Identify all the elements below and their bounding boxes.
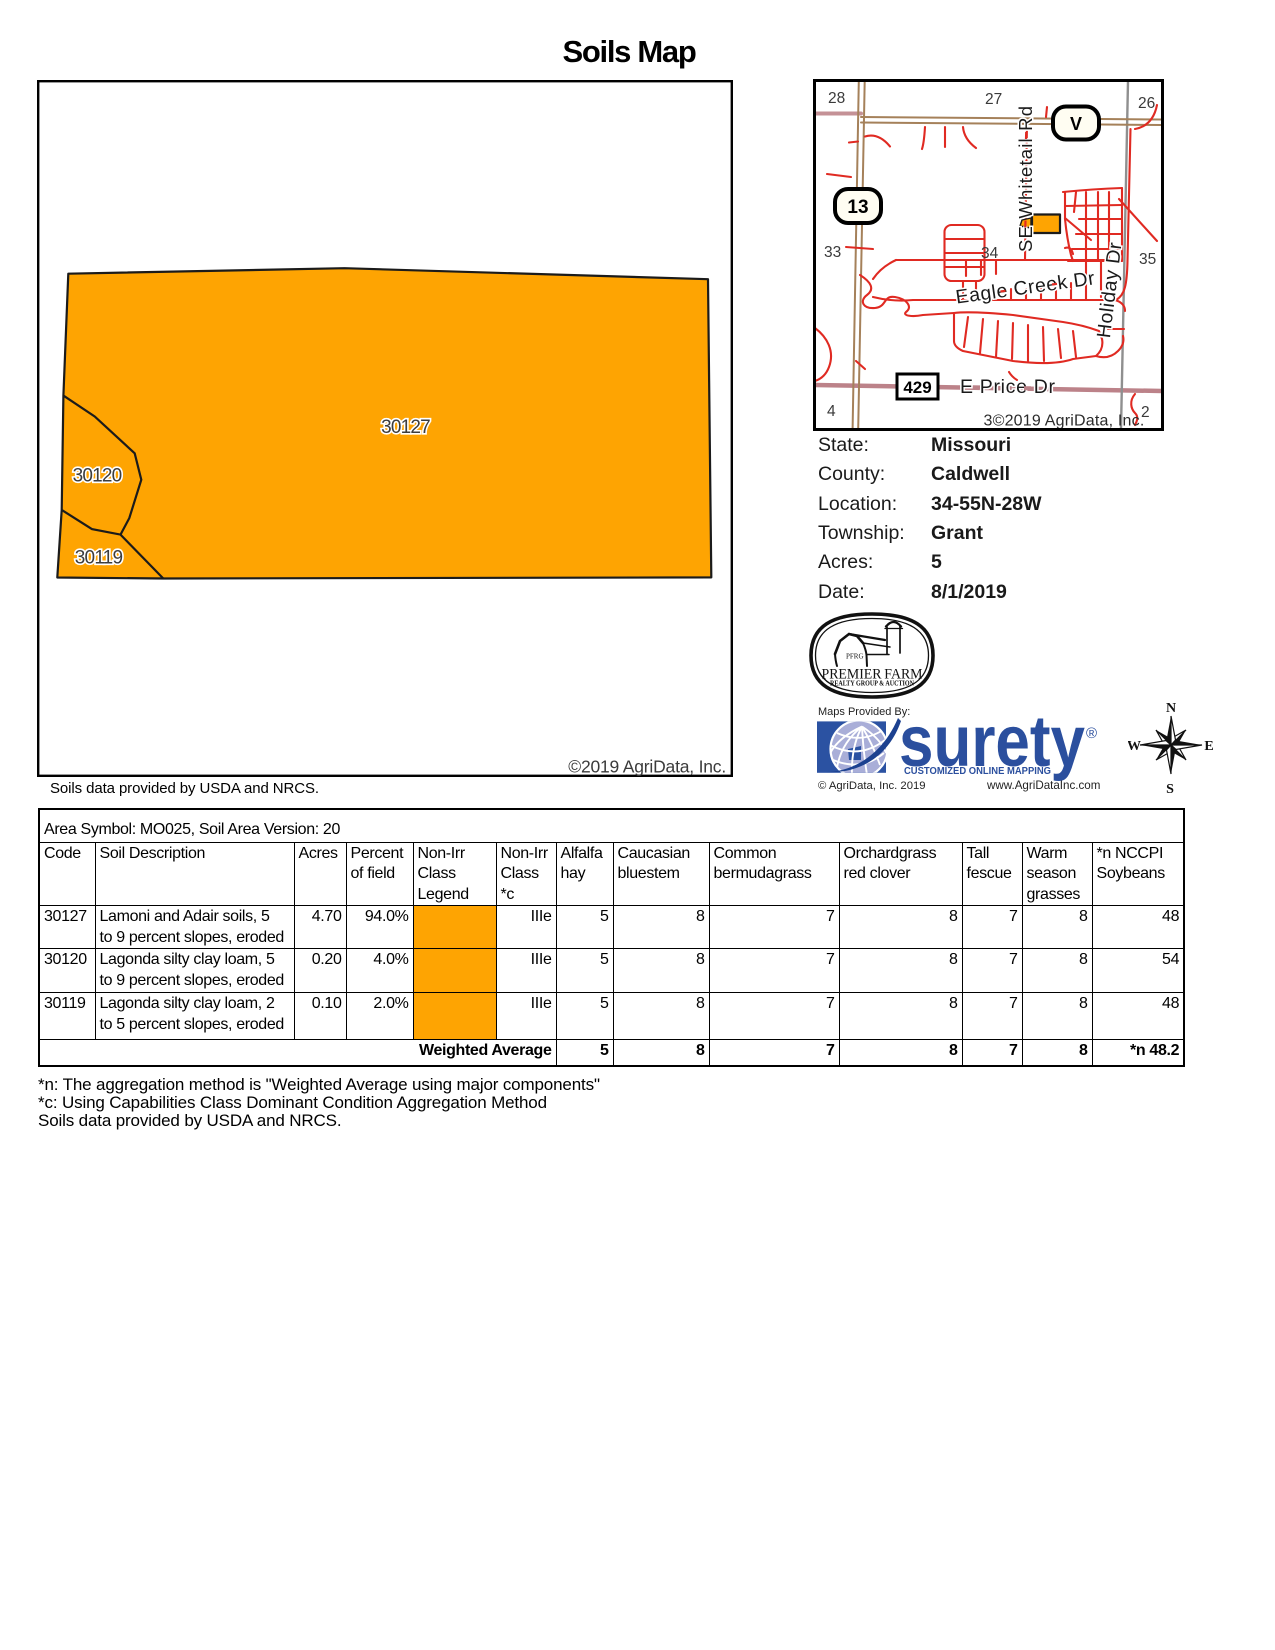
- svg-text:27: 27: [985, 91, 1002, 108]
- svg-text:V: V: [1070, 114, 1082, 134]
- svg-text:REALTY GROUP & AUCTION: REALTY GROUP & AUCTION: [830, 681, 914, 688]
- svg-text:33: 33: [824, 244, 841, 261]
- svg-text:30120: 30120: [73, 466, 122, 487]
- svg-text:PFRG: PFRG: [846, 653, 864, 661]
- svg-text:3©2019 AgriData, Inc.: 3©2019 AgriData, Inc.: [984, 413, 1145, 430]
- svg-text:CUSTOMIZED ONLINE MAPPING: CUSTOMIZED ONLINE MAPPING: [904, 765, 1051, 777]
- svg-text:28: 28: [828, 90, 845, 107]
- svg-text:N: N: [1166, 701, 1176, 716]
- svg-text:E: E: [1204, 739, 1213, 754]
- svg-text:26: 26: [1138, 95, 1155, 112]
- svg-text:429: 429: [903, 378, 931, 397]
- svg-text:®: ®: [1086, 725, 1097, 742]
- svg-text:W: W: [1128, 739, 1141, 754]
- svg-text:35: 35: [1139, 251, 1156, 268]
- svg-text:www.AgriDataInc.com: www.AgriDataInc.com: [986, 779, 1100, 792]
- svg-text:4: 4: [827, 403, 836, 420]
- svg-text:30127: 30127: [381, 417, 430, 438]
- svg-text:©2019 AgriData, Inc.: ©2019 AgriData, Inc.: [568, 757, 726, 777]
- svg-text:S: S: [1166, 782, 1174, 797]
- svg-text:30119: 30119: [75, 548, 123, 569]
- svg-text:13: 13: [847, 197, 868, 218]
- svg-text:© AgriData, Inc. 2019: © AgriData, Inc. 2019: [818, 780, 926, 792]
- svg-text:SE Whitetail Rd: SE Whitetail Rd: [1015, 106, 1036, 252]
- svg-text:34: 34: [981, 245, 999, 262]
